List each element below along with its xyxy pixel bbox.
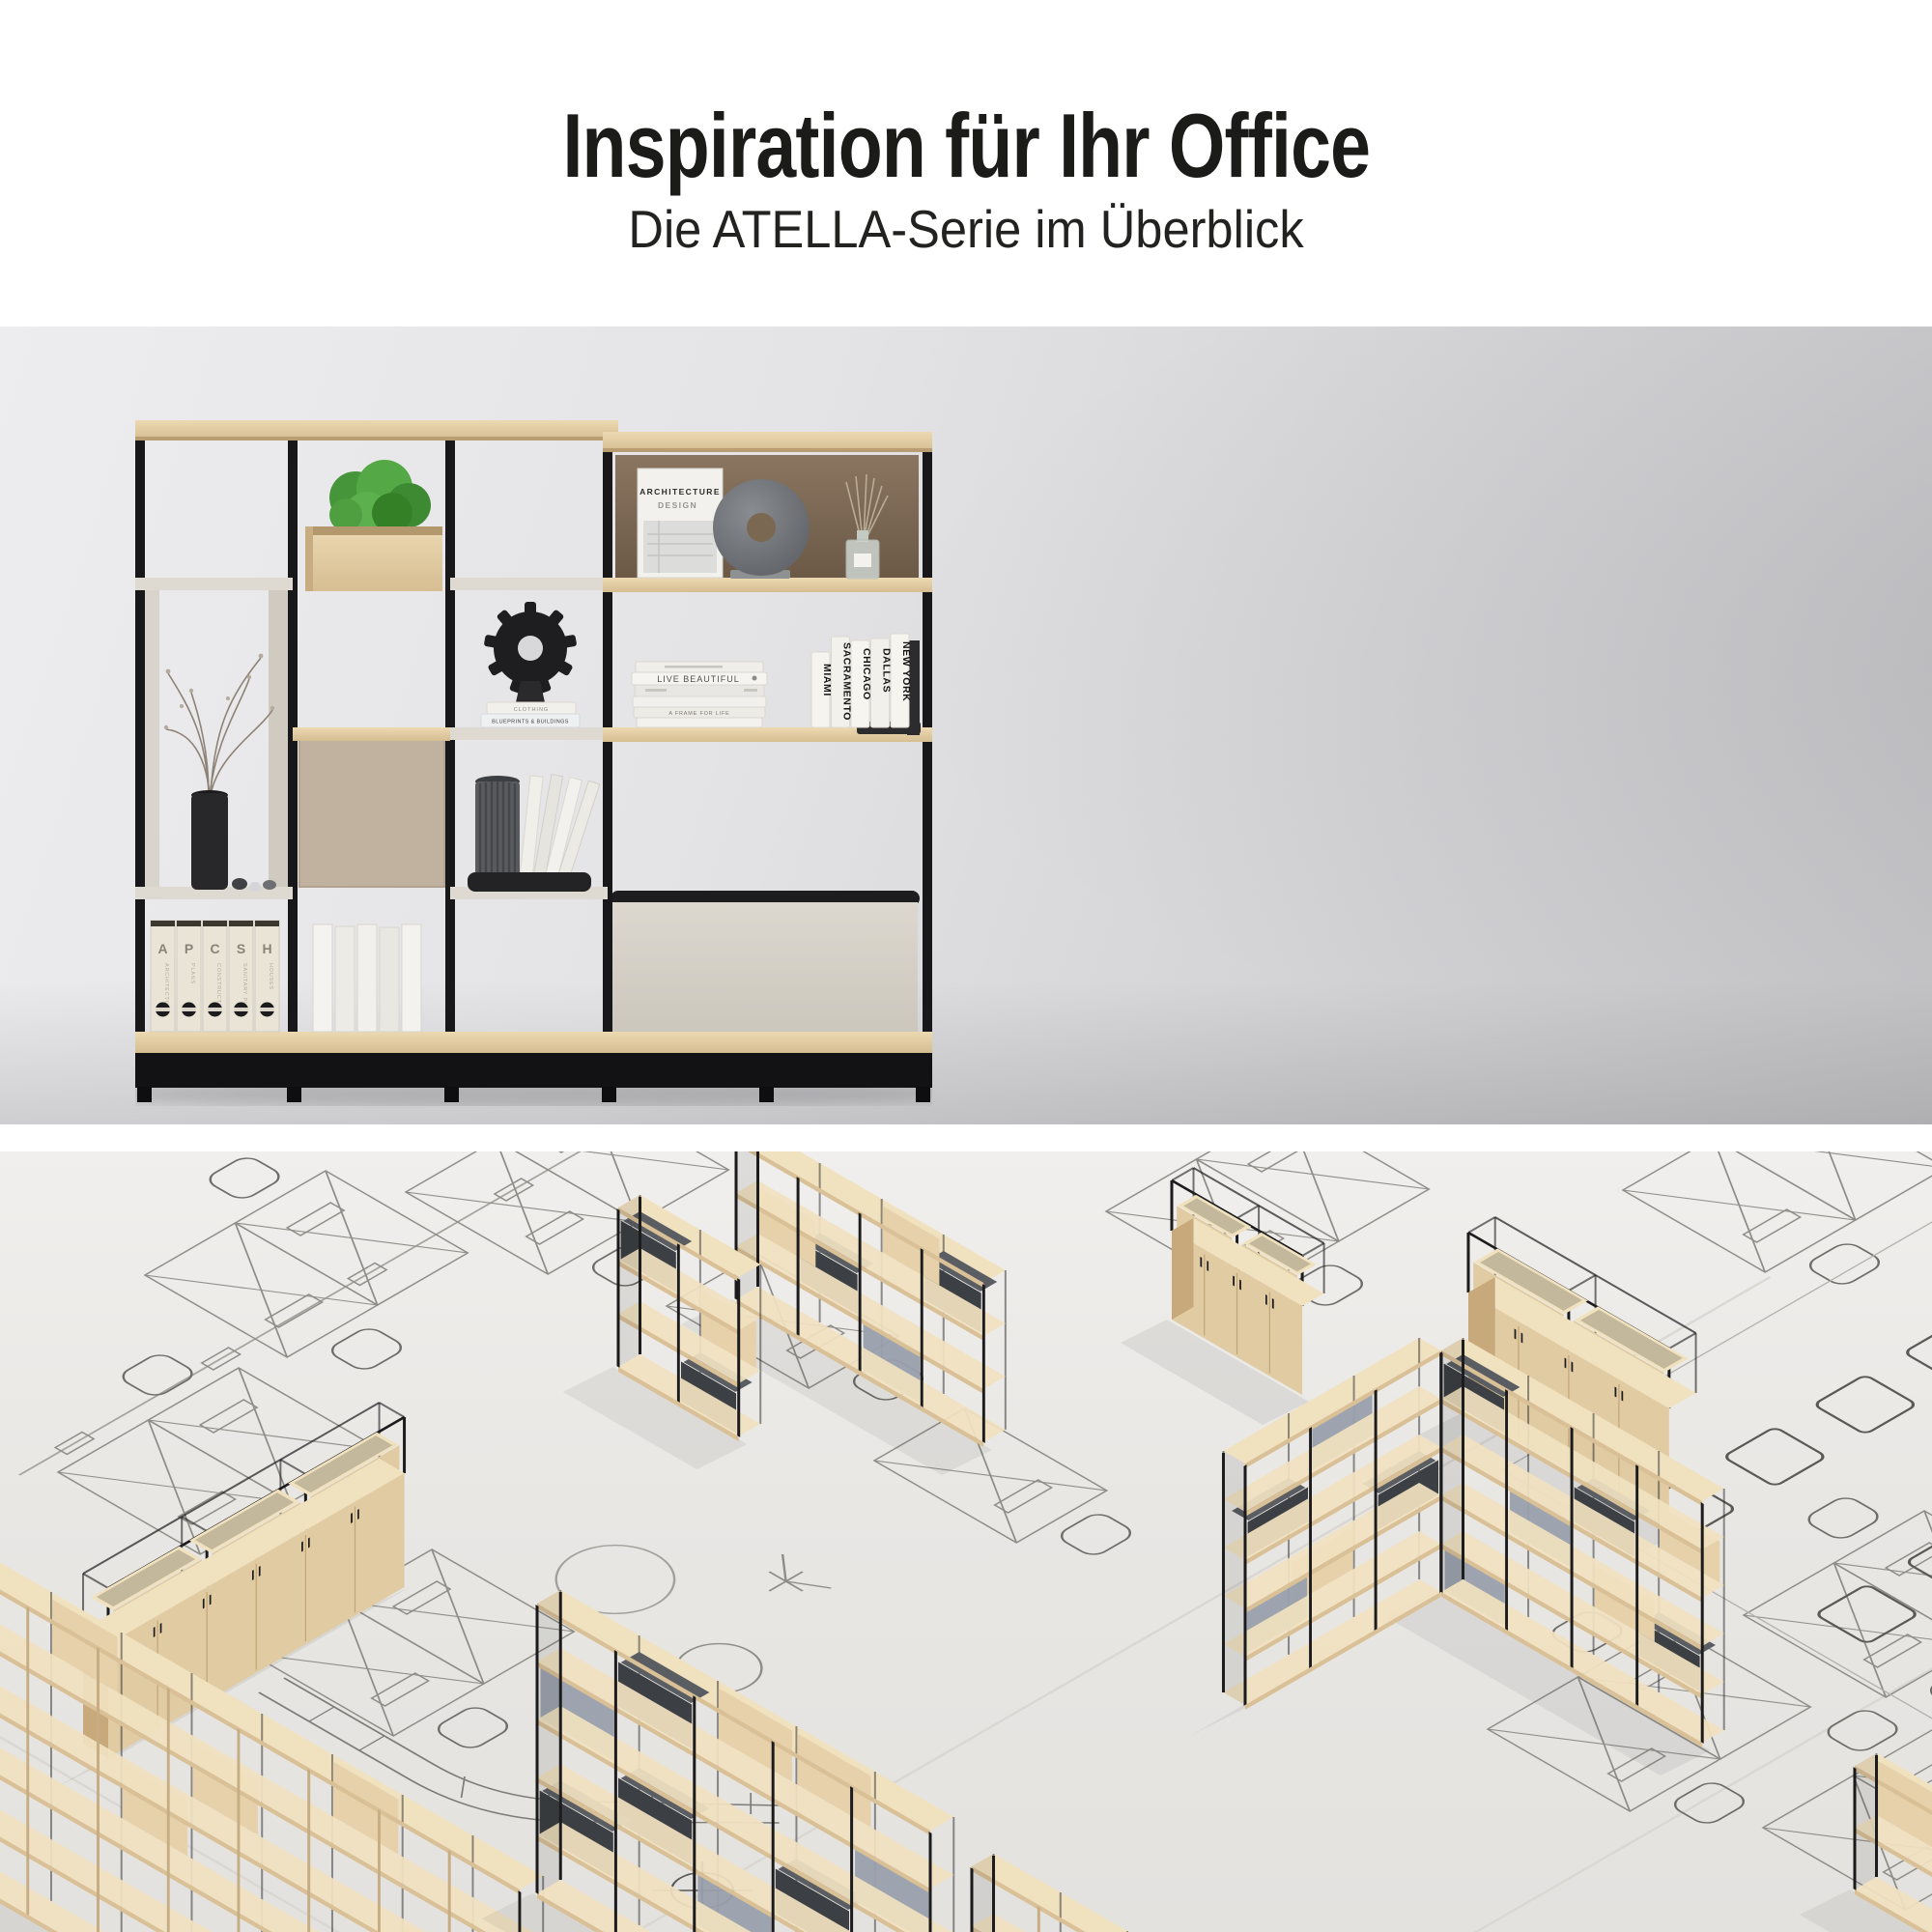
shelf-unit-right-edge bbox=[1800, 1753, 1932, 1932]
floorplan-section bbox=[0, 1151, 1932, 1932]
page-title: Inspiration für Ihr Office bbox=[0, 0, 1932, 191]
binder-row: A ARCHITECTURE P PLANS C CONSTRUCTION bbox=[151, 921, 279, 1032]
section-divider bbox=[0, 1124, 1932, 1151]
svg-text:DALLAS: DALLAS bbox=[881, 648, 893, 693]
stacked-book-pile: LIVE BEAUTIFUL A FRAME FOR LIFE bbox=[632, 662, 767, 727]
cabinet-front bbox=[611, 891, 920, 1055]
planter-box-with-plant bbox=[305, 460, 442, 591]
svg-text:LIVE BEAUTIFUL: LIVE BEAUTIFUL bbox=[657, 674, 740, 684]
binder: H HOUSES bbox=[255, 921, 279, 1032]
cube-row-bottom-right bbox=[917, 1854, 1262, 1932]
dried-branch-vase bbox=[164, 654, 276, 892]
city-book-row: MIAMI SACRAMENTO CHICAGO DALLAS NEW YORK bbox=[811, 634, 921, 735]
svg-text:H: H bbox=[262, 941, 271, 956]
page-subtitle: Die ATELLA-Serie im Überblick bbox=[0, 203, 1932, 256]
svg-text:BLUEPRINTS & BUILDINGS: BLUEPRINTS & BUILDINGS bbox=[492, 720, 569, 725]
shelf-unit-top-wing bbox=[563, 1195, 760, 1469]
marketing-banner: Inspiration für Ihr Office Die ATELLA-Se… bbox=[0, 0, 1932, 1932]
svg-text:A: A bbox=[157, 941, 167, 956]
wardrobe-left bbox=[57, 1403, 412, 1787]
svg-text:P: P bbox=[185, 941, 193, 956]
svg-text:A FRAME FOR LIFE: A FRAME FOR LIFE bbox=[668, 711, 729, 717]
white-book-row bbox=[313, 924, 421, 1032]
binder: C CONSTRUCTION bbox=[203, 921, 227, 1032]
floorplan-illustration bbox=[0, 1151, 1932, 1932]
plan-drawing bbox=[92, 1151, 520, 1387]
plan-drawing bbox=[1570, 1151, 1932, 1302]
svg-text:MIAMI: MIAMI bbox=[821, 664, 833, 696]
fabric-acoustic-panel bbox=[299, 740, 444, 887]
binder: S SANITARY PLAN bbox=[229, 921, 253, 1032]
plan-drawing bbox=[353, 1151, 781, 1304]
svg-text:NEW YORK: NEW YORK bbox=[900, 641, 912, 701]
wardrobe-small bbox=[1121, 1168, 1324, 1425]
binder: A ARCHITECTURE bbox=[151, 921, 175, 1032]
svg-text:ARCHITECTURE: ARCHITECTURE bbox=[639, 487, 721, 497]
svg-text:CLOTHING: CLOTHING bbox=[514, 707, 549, 713]
header: Inspiration für Ihr Office Die ATELLA-Se… bbox=[0, 0, 1932, 327]
atella-shelf-photo: A ARCHITECTURE P PLANS C CONSTRUCTION bbox=[135, 420, 932, 1106]
product-photo-section: A ARCHITECTURE P PLANS C CONSTRUCTION bbox=[0, 327, 1932, 1124]
binder: P PLANS bbox=[177, 921, 201, 1032]
svg-text:PLANS: PLANS bbox=[189, 963, 195, 984]
svg-text:CHICAGO: CHICAGO bbox=[861, 648, 872, 700]
svg-text:C: C bbox=[210, 941, 219, 956]
svg-text:SACRAMENTO: SACRAMENTO bbox=[841, 642, 853, 721]
architecture-design-book: ARCHITECTURE DESIGN bbox=[638, 469, 723, 578]
svg-text:DESIGN: DESIGN bbox=[658, 500, 697, 510]
svg-text:HOUSES: HOUSES bbox=[268, 963, 273, 990]
shelf-unit-bottom-center bbox=[482, 1590, 954, 1932]
pleated-vase-and-books bbox=[468, 775, 600, 892]
svg-text:S: S bbox=[237, 941, 245, 956]
gear-sculpture: CLOTHING BLUEPRINTS & BUILDINGS bbox=[481, 602, 580, 727]
